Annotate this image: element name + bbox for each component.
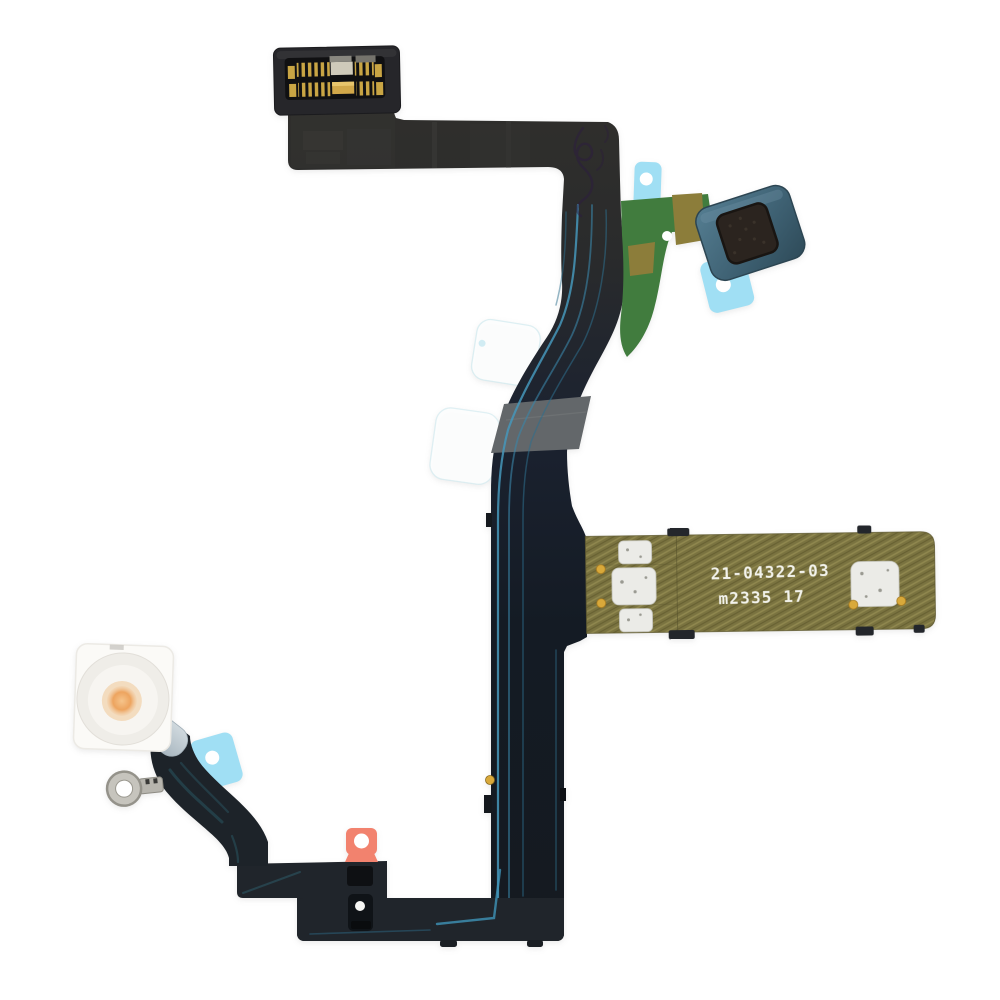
gold-pin-dot [486,776,495,785]
olive-segment-2 [628,242,655,276]
board-connector [273,46,400,116]
clear-adhesive-tab-2 [428,406,501,486]
flex-cable-assembly: 21-04322-03 m2335 17 [73,46,936,947]
pcb-label-strip: 21-04322-03 m2335 17 [585,525,936,641]
pcb-part-number: 21-04322-03 [710,561,830,584]
screw-hole [355,901,365,911]
pcb-date-code: m2335 17 [718,587,805,609]
ribbon-gray-band [491,396,591,453]
connector-pins [285,55,386,100]
pull-tab [345,828,378,862]
flash-diffuser [73,643,174,751]
main-flex-ribbon [288,103,625,941]
product-photo-flex-cable: 21-04322-03 m2335 17 [0,0,1000,1000]
pull-tab-anchor [347,866,373,886]
green-arm-hole [662,231,672,241]
